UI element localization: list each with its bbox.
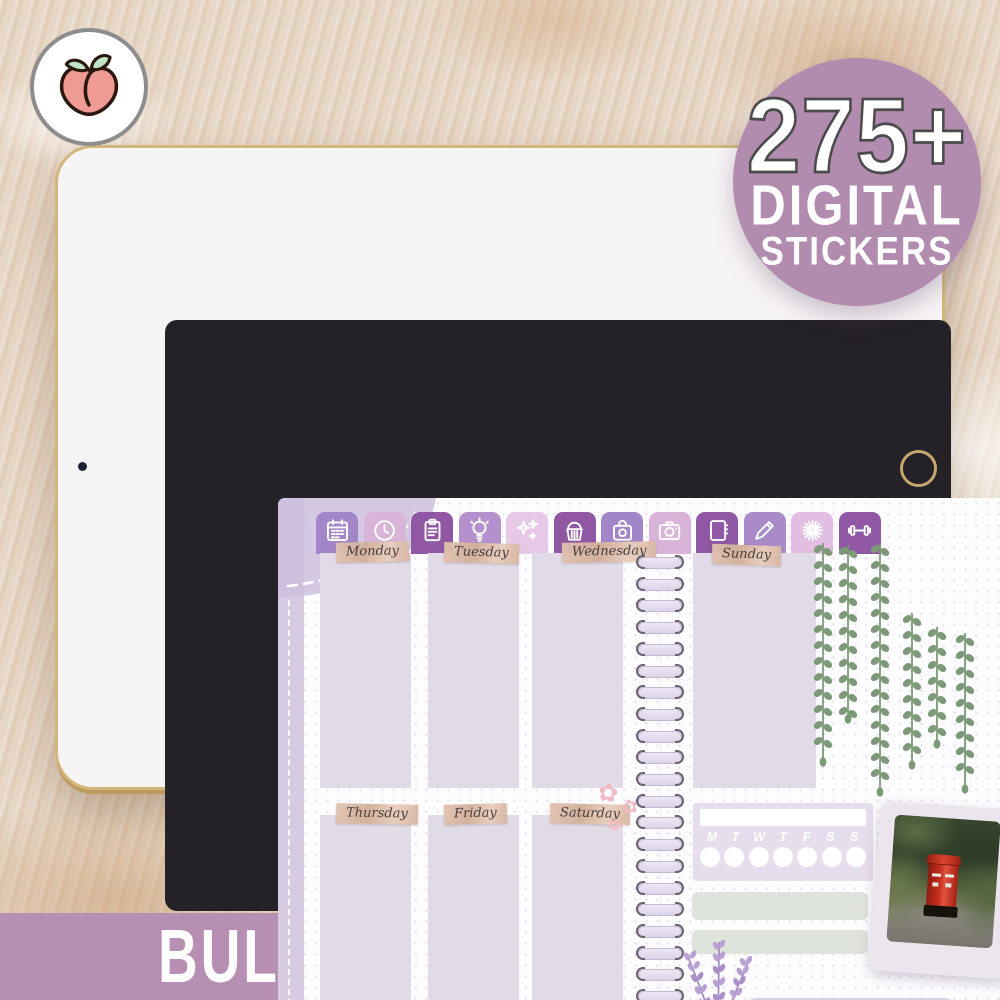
lavender-sprig-decoration: [673, 936, 765, 1000]
habit-circle[interactable]: [797, 847, 817, 867]
sticker-count-badge: 275+ DIGITAL STICKERS: [733, 58, 981, 306]
tracker-day-letter: T: [771, 830, 795, 844]
badge-count: 275+: [747, 88, 967, 185]
tracker-day-letter: W: [747, 830, 771, 844]
tracker-day-letter: F: [795, 830, 819, 844]
postbox: [925, 854, 959, 918]
home-button[interactable]: [900, 450, 937, 487]
postbox-slot: [945, 874, 954, 878]
tracker-day-letter: S: [819, 830, 843, 844]
tracker-day-letter: M: [700, 830, 724, 844]
peach-icon: [50, 48, 128, 126]
product-image: BULLET JOURNAL PRO: [0, 0, 1000, 1000]
habit-tracker-day-letters: MTWTFSS: [700, 830, 866, 844]
postbox-slot: [932, 873, 941, 877]
habit-circle[interactable]: [749, 847, 769, 867]
washi-strip-1: [692, 892, 868, 920]
habit-circle[interactable]: [822, 847, 842, 867]
habit-circle[interactable]: [846, 847, 866, 867]
habit-circle[interactable]: [773, 847, 793, 867]
habit-tracker: MTWTFSS: [693, 803, 873, 881]
red-postbox-photo: [886, 814, 1000, 948]
badge-word-stickers: STICKERS: [761, 230, 954, 274]
polaroid-frame: [869, 800, 1000, 979]
habit-tracker-circles: [700, 847, 866, 867]
badge-word-digital: DIGITAL: [750, 177, 963, 236]
habit-circle[interactable]: [724, 847, 744, 867]
tracker-day-letter: S: [842, 830, 866, 844]
postbox-base: [923, 905, 958, 918]
front-camera: [78, 462, 87, 471]
peach-logo: [30, 28, 148, 146]
postbox-plate: [945, 883, 951, 887]
planner-page: Monday Tuesday Wednesday Sunday Thursday…: [278, 498, 1000, 1000]
postbox-cap: [927, 854, 962, 865]
habit-tracker-title-bar[interactable]: [700, 809, 866, 826]
tracker-day-letter: T: [724, 830, 748, 844]
tablet-screen: Monday Tuesday Wednesday Sunday Thursday…: [165, 320, 951, 911]
postbox-plate: [932, 882, 938, 886]
habit-circle[interactable]: [700, 847, 720, 867]
